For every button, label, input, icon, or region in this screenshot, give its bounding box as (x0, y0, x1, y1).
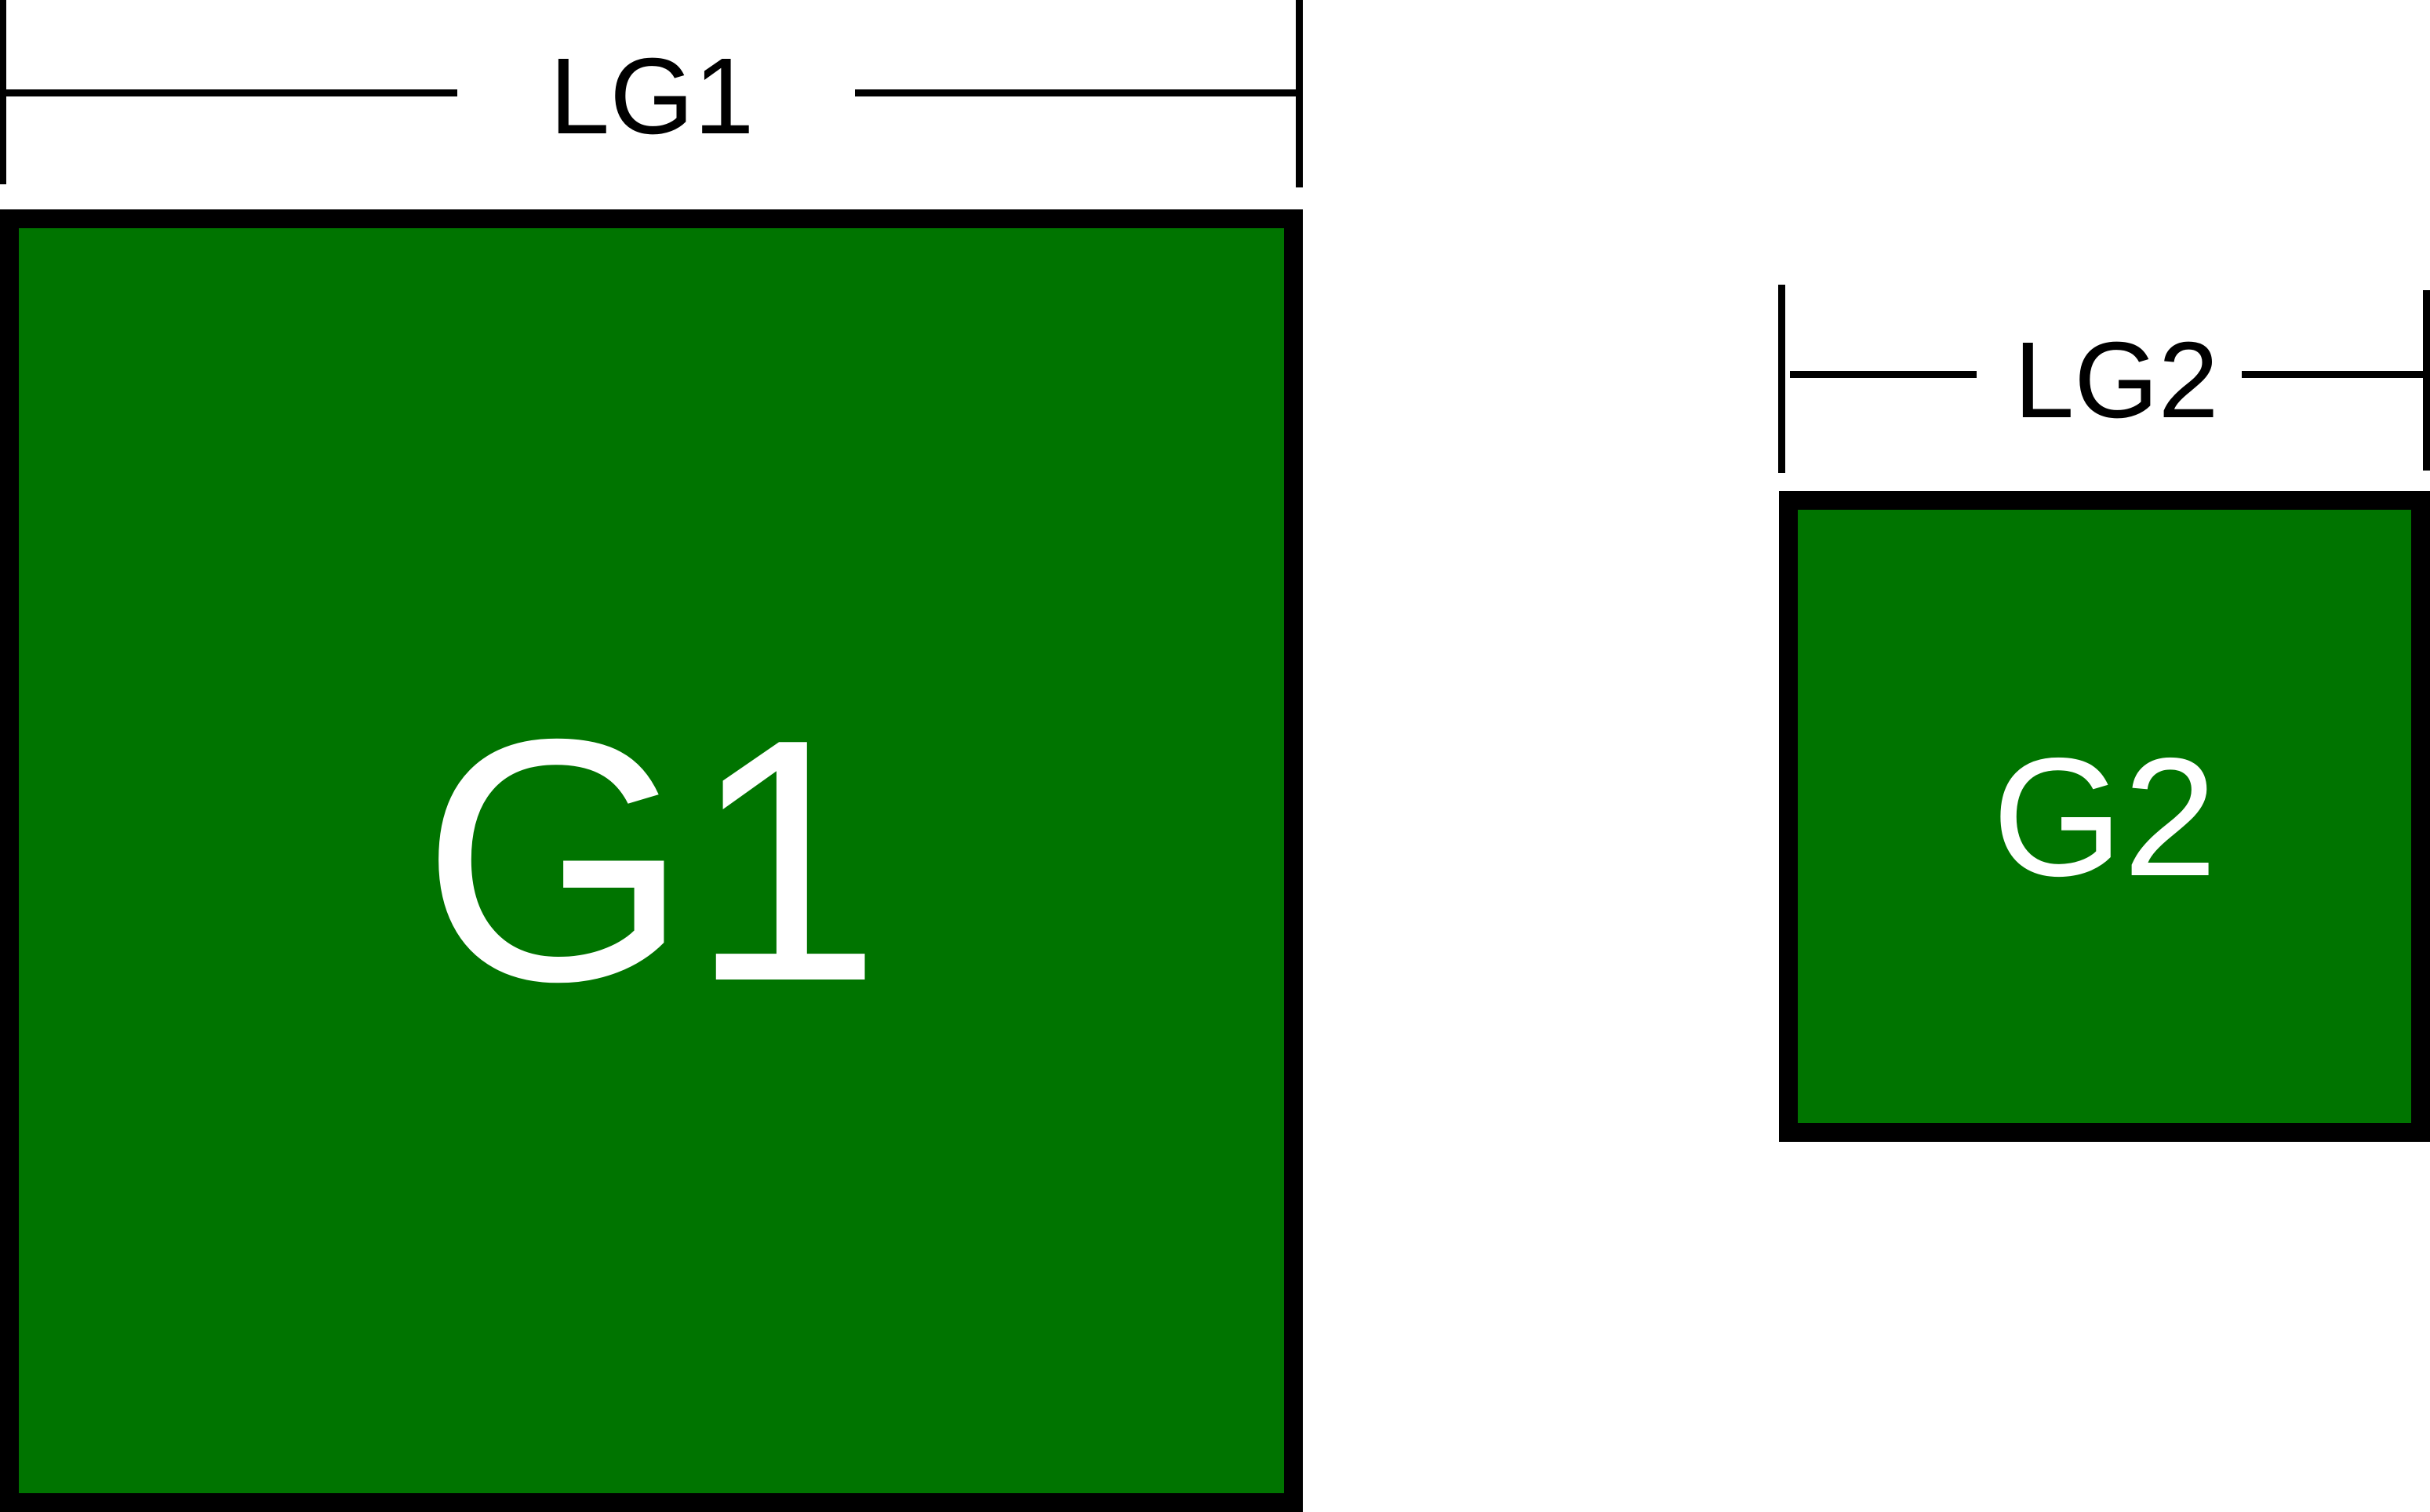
g1-square: G1 (0, 209, 1303, 1512)
lg1-label: LG1 (550, 42, 755, 151)
lg2-extension-line-right (2423, 290, 2430, 471)
g1-label: G1 (421, 689, 882, 1034)
lg1-extension-line-left (0, 0, 6, 184)
lg2-extension-line-left (1778, 285, 1785, 473)
lg2-dimension-line-left-segment (1790, 371, 1977, 378)
g2-square: G2 (1779, 491, 2430, 1142)
diagram-canvas: LG1 G1 LG2 G2 (0, 0, 2430, 1512)
lg2-dimension-line-right-segment (2242, 371, 2423, 378)
lg1-dimension-line-left-segment (6, 89, 457, 96)
lg1-extension-line-right (1296, 0, 1303, 187)
lg1-dimension-line-right-segment (855, 89, 1296, 96)
lg2-label: LG2 (2014, 326, 2219, 434)
g2-label: G2 (1992, 732, 2217, 901)
